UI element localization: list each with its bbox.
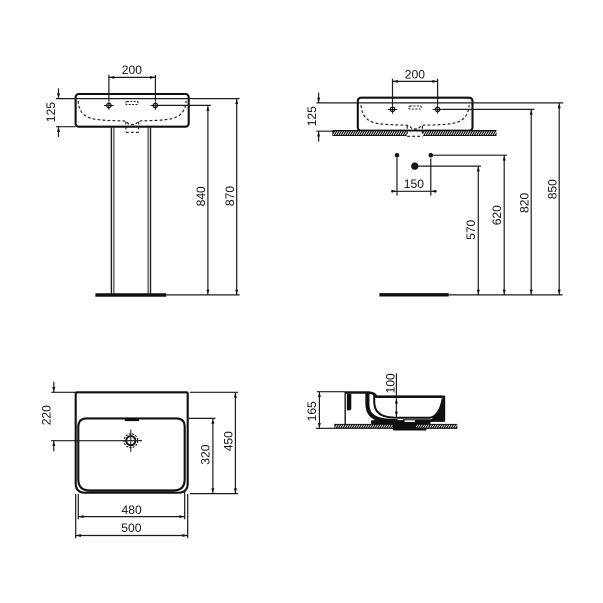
svg-text:450: 450 — [221, 431, 235, 451]
svg-text:850: 850 — [545, 179, 559, 199]
svg-text:150: 150 — [404, 177, 424, 191]
svg-text:320: 320 — [198, 444, 212, 464]
svg-text:220: 220 — [39, 405, 53, 425]
svg-text:480: 480 — [122, 503, 142, 517]
svg-text:820: 820 — [517, 193, 531, 213]
svg-text:200: 200 — [405, 68, 425, 82]
svg-text:200: 200 — [122, 63, 142, 77]
svg-text:125: 125 — [305, 106, 319, 126]
svg-text:165: 165 — [305, 401, 319, 421]
svg-text:570: 570 — [464, 219, 478, 239]
svg-text:500: 500 — [121, 521, 141, 535]
svg-text:100: 100 — [384, 373, 398, 393]
svg-text:125: 125 — [44, 102, 58, 122]
svg-text:620: 620 — [490, 205, 504, 225]
svg-text:870: 870 — [223, 186, 237, 206]
svg-text:840: 840 — [194, 186, 208, 206]
